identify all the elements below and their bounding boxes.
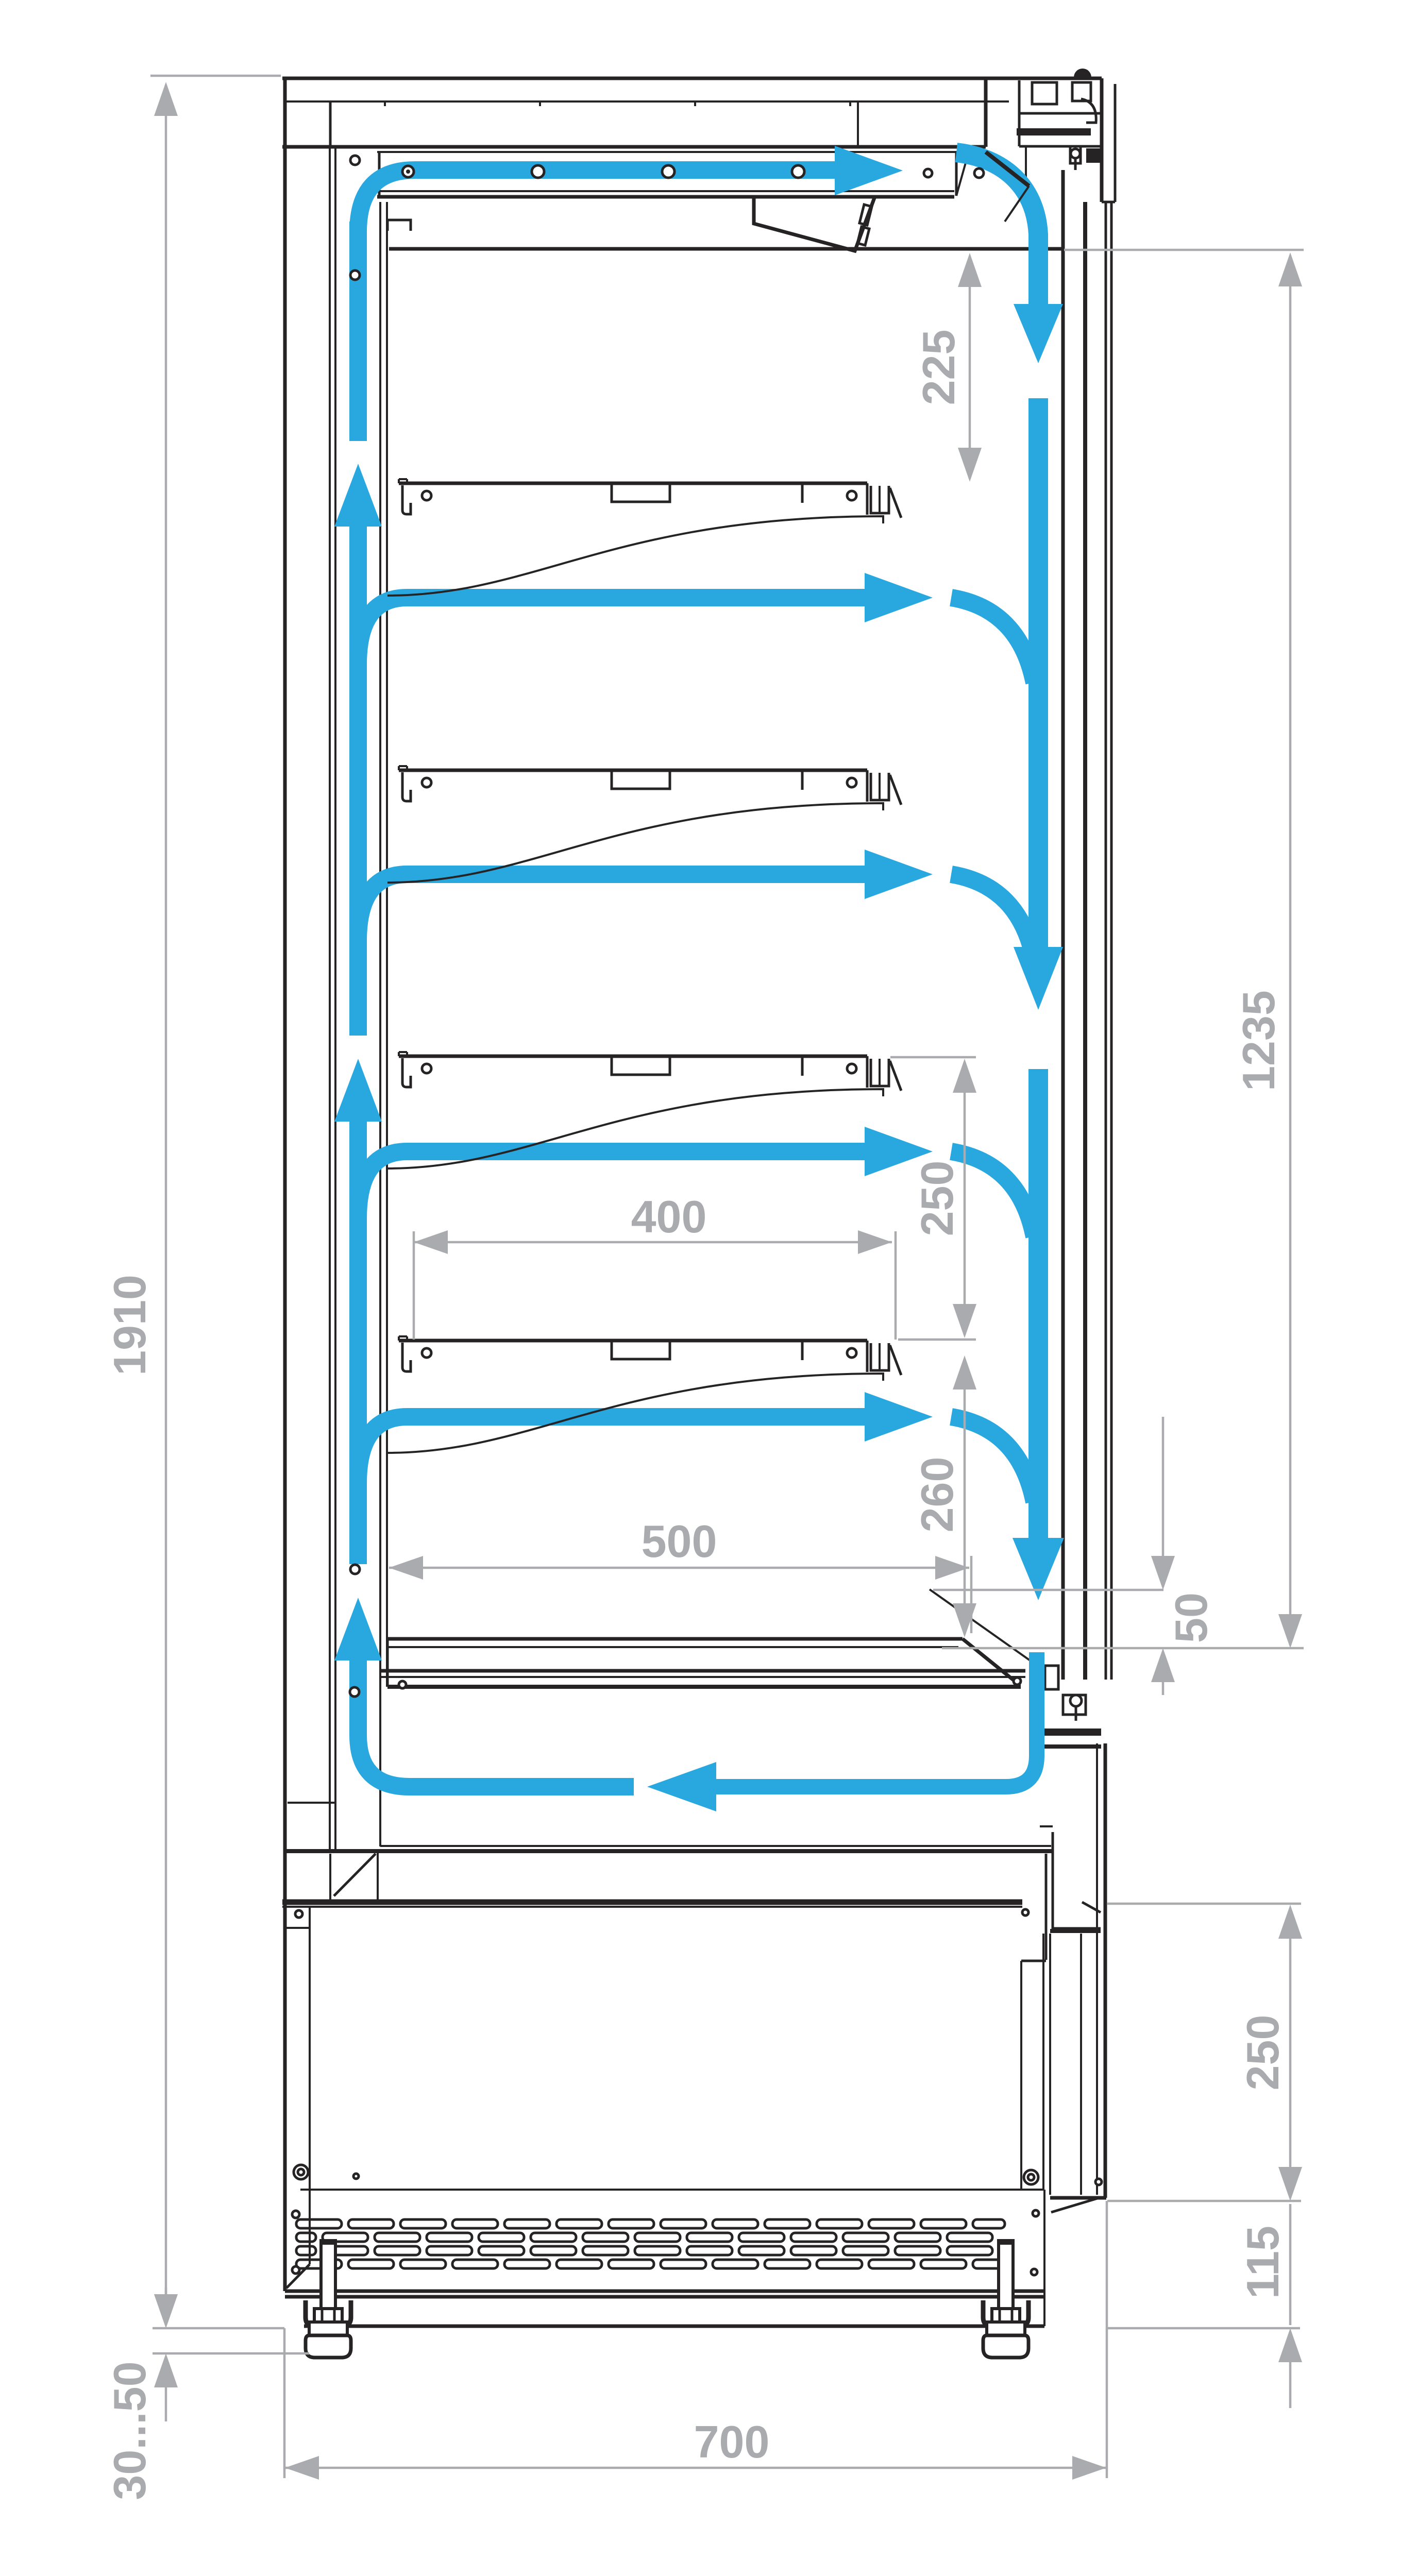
svg-text:250: 250 (912, 1161, 963, 1236)
svg-text:700: 700 (694, 2416, 770, 2467)
svg-text:115: 115 (1237, 2226, 1288, 2299)
svg-text:50: 50 (1166, 1592, 1217, 1643)
svg-text:1235: 1235 (1233, 990, 1284, 1091)
svg-text:1910: 1910 (104, 1275, 155, 1376)
svg-text:30...50: 30...50 (104, 2361, 155, 2500)
svg-text:250: 250 (1237, 2015, 1288, 2091)
svg-text:500: 500 (642, 1516, 717, 1567)
svg-text:260: 260 (912, 1457, 963, 1533)
svg-text:400: 400 (631, 1191, 707, 1242)
svg-text:225: 225 (913, 330, 964, 405)
